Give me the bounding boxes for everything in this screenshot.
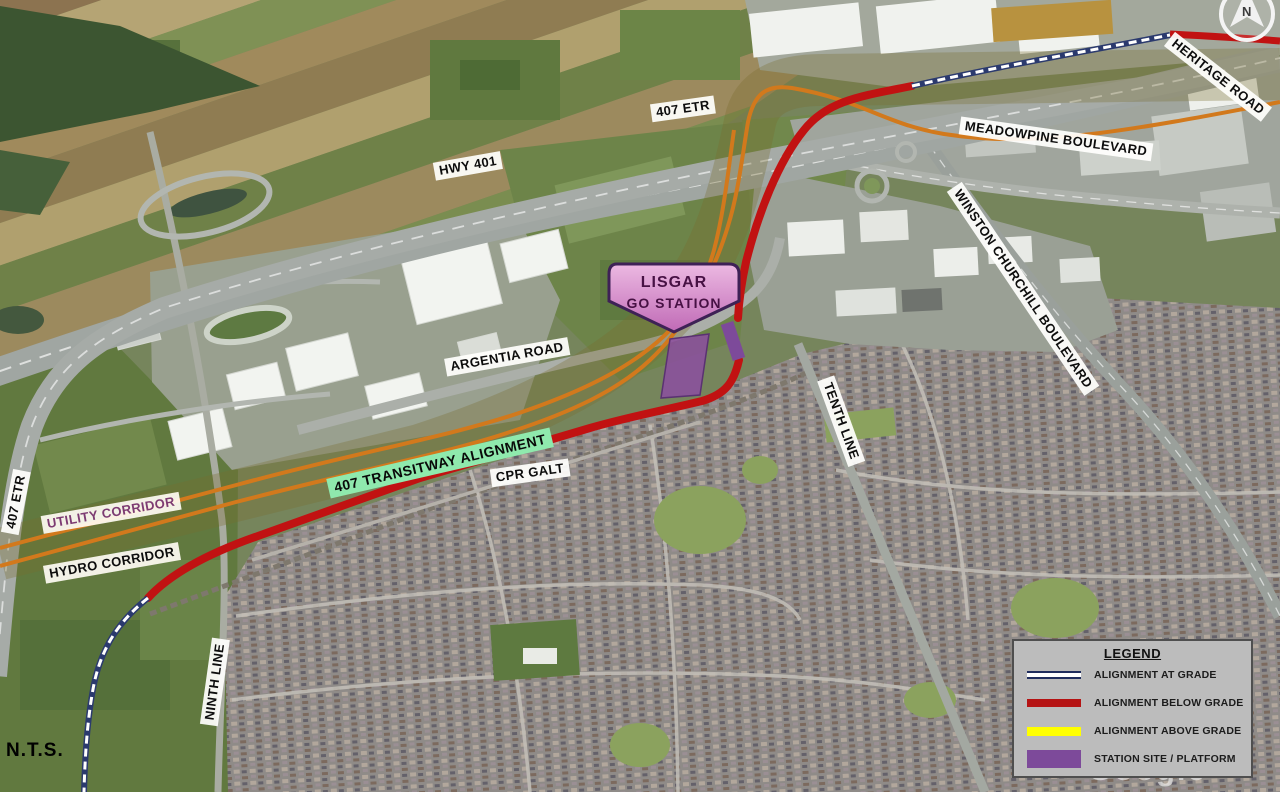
- station-callout-type: GO STATION: [626, 295, 721, 311]
- transitway-map: HWY 401 407 ETR 407 ETR MEADOWPINE BOULE…: [0, 0, 1280, 792]
- legend-row-below-grade: ALIGNMENT BELOW GRADE: [1014, 689, 1251, 717]
- below-grade-line-swatch: [1027, 699, 1081, 707]
- scale-note: N.T.S.: [6, 740, 64, 762]
- north-arrow-letter: N: [1242, 4, 1251, 19]
- legend-box: LEGEND ALIGNMENT AT GRADE ALIGNMENT BELO…: [1012, 639, 1253, 778]
- above-grade-line-swatch: [1027, 727, 1081, 736]
- legend-row-above-grade: ALIGNMENT ABOVE GRADE: [1014, 717, 1251, 745]
- legend-title: LEGEND: [1014, 646, 1251, 661]
- legend-row-station-site: STATION SITE / PLATFORM: [1014, 745, 1251, 773]
- station-site-swatch: [1027, 750, 1081, 768]
- station-platform: [727, 323, 739, 359]
- legend-label: ALIGNMENT BELOW GRADE: [1094, 697, 1243, 709]
- at-grade-line-swatch: [1027, 671, 1081, 679]
- legend-label: STATION SITE / PLATFORM: [1094, 753, 1236, 765]
- legend-label: ALIGNMENT ABOVE GRADE: [1094, 725, 1241, 737]
- station-callout-name: LISGAR: [641, 274, 707, 292]
- legend-row-at-grade: ALIGNMENT AT GRADE: [1014, 661, 1251, 689]
- alignment-at-grade-path: [84, 35, 1170, 792]
- legend-label: ALIGNMENT AT GRADE: [1094, 669, 1217, 681]
